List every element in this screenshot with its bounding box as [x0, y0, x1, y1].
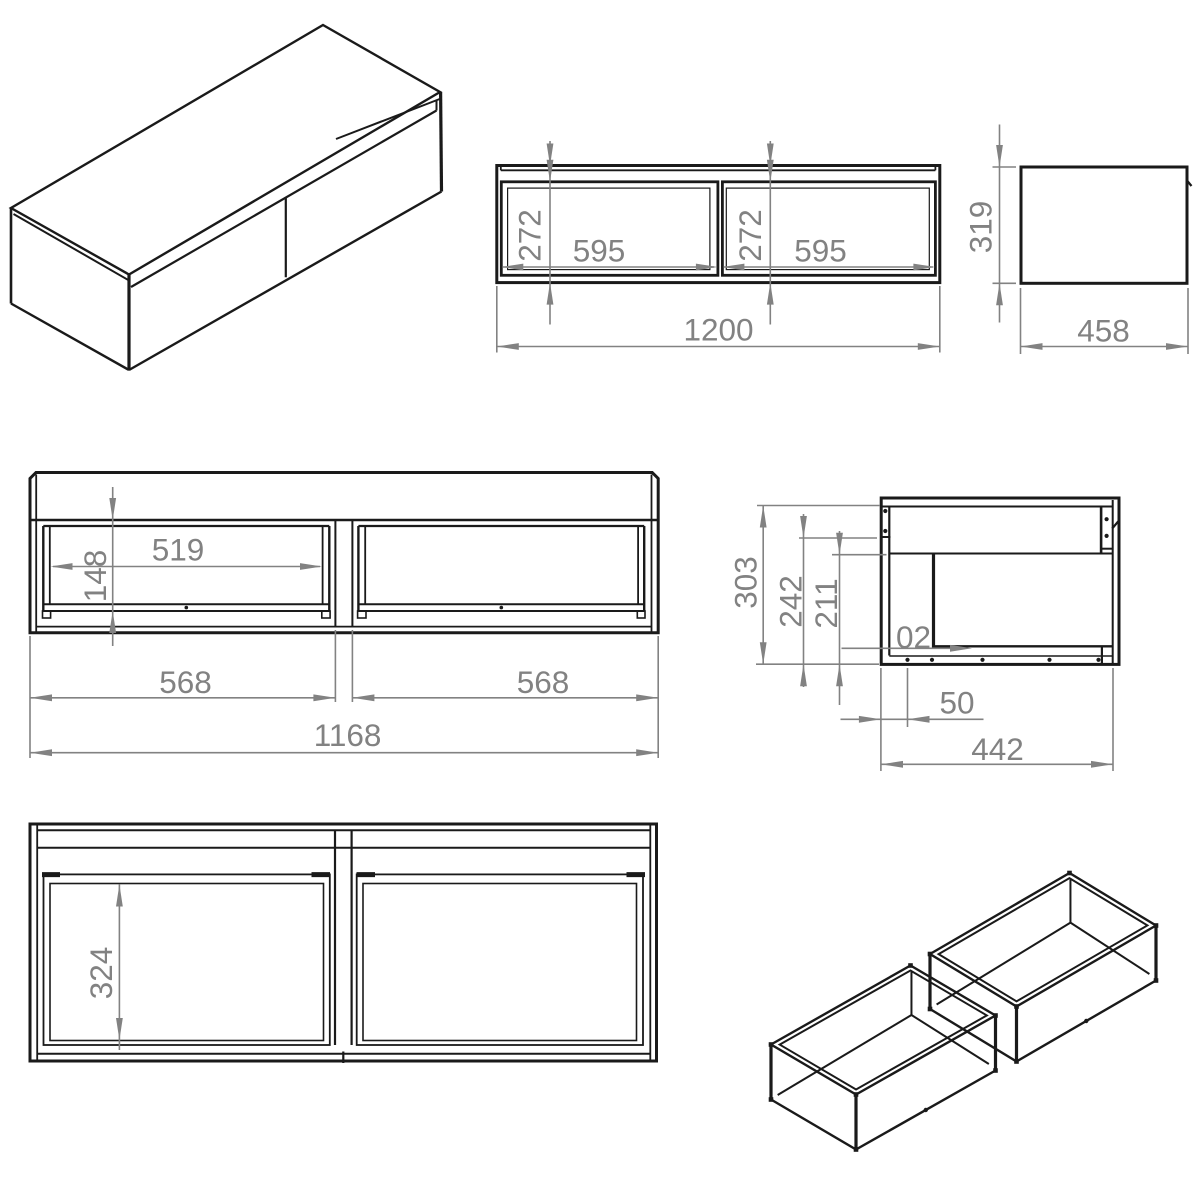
svg-text:458: 458: [1077, 313, 1130, 349]
svg-text:319: 319: [963, 201, 999, 254]
svg-text:272: 272: [732, 209, 768, 262]
svg-text:595: 595: [573, 233, 626, 269]
svg-text:148: 148: [77, 550, 113, 603]
svg-text:211: 211: [808, 578, 844, 628]
svg-text:1200: 1200: [683, 312, 753, 348]
svg-text:595: 595: [794, 233, 847, 269]
svg-text:324: 324: [83, 947, 119, 1000]
svg-text:568: 568: [517, 664, 570, 700]
svg-text:519: 519: [152, 531, 205, 567]
svg-text:1168: 1168: [314, 717, 382, 753]
svg-text:303: 303: [728, 556, 764, 609]
svg-text:02: 02: [896, 619, 931, 655]
svg-text:442: 442: [971, 731, 1024, 767]
svg-text:568: 568: [159, 664, 212, 700]
svg-text:272: 272: [512, 209, 548, 262]
svg-text:242: 242: [773, 575, 809, 628]
svg-text:50: 50: [939, 685, 974, 721]
